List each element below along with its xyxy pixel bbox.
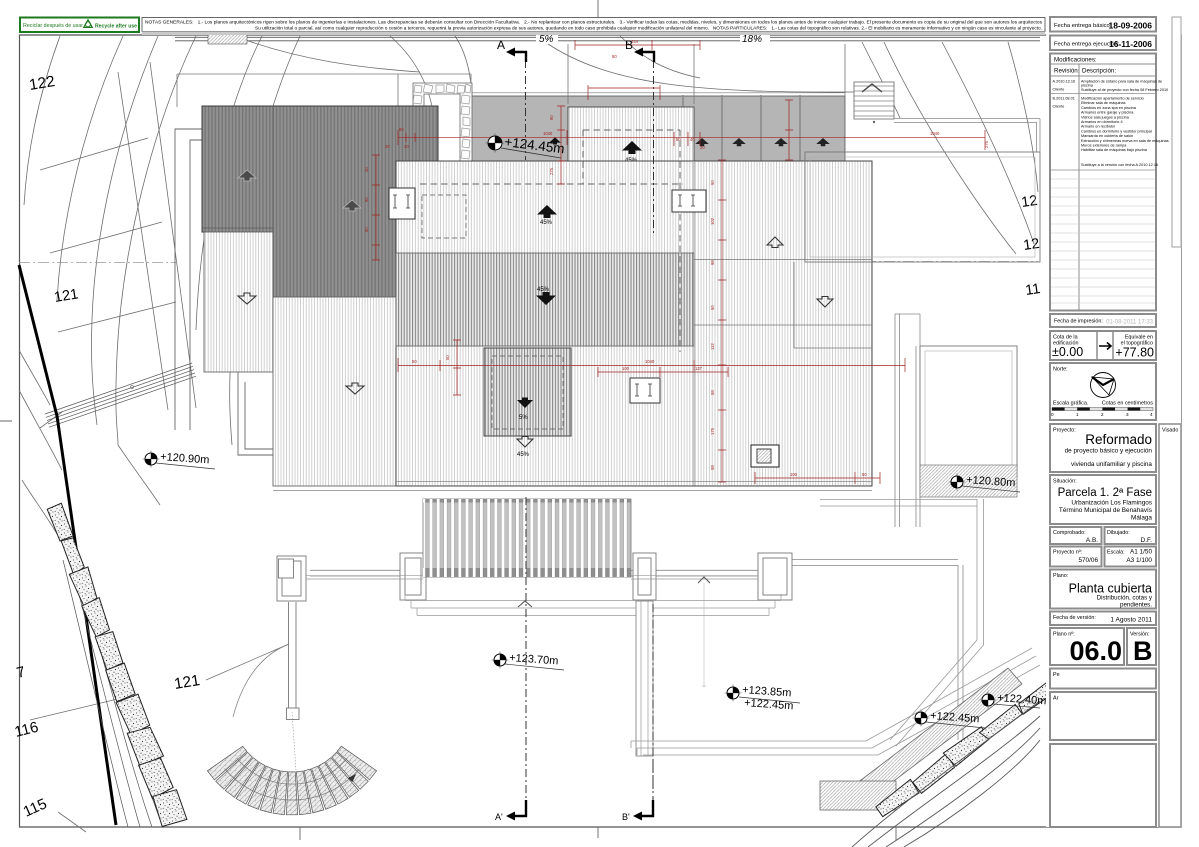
svg-text:112: 112	[710, 343, 715, 350]
svg-text:20: 20	[700, 145, 705, 150]
svg-text:1040: 1040	[543, 131, 553, 136]
svg-text:Armario en recibidor: Armario en recibidor	[1081, 125, 1116, 129]
svg-text:58: 58	[710, 465, 715, 470]
svg-text:45%: 45%	[517, 452, 530, 458]
svg-text:90: 90	[364, 197, 369, 202]
svg-text:12: 12	[1020, 193, 1038, 211]
svg-text:A': A'	[495, 812, 503, 822]
svg-text:Descripción:: Descripción:	[1082, 68, 1116, 75]
svg-text:Fecha entrega básico:: Fecha entrega básico:	[1054, 23, 1112, 29]
svg-text:45%: 45%	[540, 220, 553, 226]
svg-text:Escala:: Escala:	[1107, 550, 1125, 556]
svg-text:1040: 1040	[930, 131, 940, 136]
svg-text:A: A	[497, 38, 505, 52]
svg-text:NOTAS GENERALES: 1.- Los pla: NOTAS GENERALES: 1.- Los planos arquitec…	[145, 20, 1043, 25]
svg-text:Reformado: Reformado	[1085, 432, 1152, 447]
svg-text:Modificaciones:: Modificaciones:	[1054, 57, 1097, 64]
svg-text:de proyecto básico y ejecución: de proyecto básico y ejecución	[1065, 448, 1153, 455]
svg-text:±0.00: ±0.00	[1052, 345, 1083, 359]
svg-text:Armarios en dormitorio 4: Armarios en dormitorio 4	[1081, 120, 1123, 124]
svg-text:Plano:: Plano:	[1053, 573, 1068, 579]
svg-text:Sustituye al de proyecto con f: Sustituye al de proyecto con fecha 08 Fe…	[1081, 88, 1168, 92]
svg-text:50: 50	[412, 359, 417, 364]
svg-text:Ar: Ar	[1053, 696, 1059, 702]
svg-text:Proyecto nº:: Proyecto nº:	[1053, 550, 1082, 556]
svg-text:Fecha de versión:: Fecha de versión:	[1053, 615, 1096, 621]
svg-text:Eliminar sala de máquinas: Eliminar sala de máquinas	[1081, 101, 1126, 105]
svg-text:Málaga: Málaga	[1131, 515, 1152, 522]
svg-text:11: 11	[1024, 281, 1041, 299]
svg-text:18-09-2006: 18-09-2006	[1109, 21, 1153, 31]
svg-text:Fecha de impresión:: Fecha de impresión:	[1054, 319, 1103, 325]
svg-text:Reciclar después de usar: Reciclar después de usar	[23, 23, 83, 29]
svg-text:Ampliación de sótano para sala: Ampliación de sótano para sala de máquin…	[1081, 80, 1162, 84]
svg-text:100: 100	[622, 366, 630, 371]
svg-text:20: 20	[385, 144, 390, 149]
svg-text:Urbanización Los Flamingos: Urbanización Los Flamingos	[1071, 500, 1152, 507]
svg-text:D.F.: D.F.	[1141, 537, 1153, 544]
svg-text:50: 50	[676, 137, 681, 142]
svg-text:A.B.: A.B.	[1086, 537, 1098, 544]
svg-text:1040: 1040	[645, 359, 655, 364]
svg-text:40: 40	[690, 137, 695, 142]
svg-text:Planta cubierta: Planta cubierta	[1069, 582, 1152, 596]
svg-text:Habilitar sala de máquinas baj: Habilitar sala de máquinas bajo piscina	[1081, 148, 1148, 152]
svg-text:Muros exteriores de rampa: Muros exteriores de rampa	[1081, 144, 1127, 148]
svg-text:Visado: Visado	[1162, 428, 1178, 434]
svg-text:102: 102	[710, 217, 715, 225]
svg-text:98: 98	[710, 260, 715, 265]
svg-text:16-11-2006: 16-11-2006	[1109, 39, 1152, 49]
svg-text:50: 50	[710, 180, 715, 185]
svg-text:Su utilización total o parcial: Su utilización total o parcial, así como…	[255, 26, 1042, 31]
svg-text:570/06: 570/06	[1078, 557, 1098, 564]
svg-text:A1 1/50: A1 1/50	[1130, 549, 1152, 556]
svg-text:Proyecto:: Proyecto:	[1053, 428, 1076, 434]
svg-text:Modificación apartamento de se: Modificación apartamento de servicio	[1081, 97, 1144, 101]
svg-text:B: B	[625, 38, 633, 52]
svg-text:2: 2	[1101, 412, 1104, 417]
svg-text:58: 58	[710, 390, 715, 395]
svg-text:Cambios en zona spa en piscina: Cambios en zona spa en piscina	[1081, 106, 1137, 110]
svg-text:Cotas en centímetros: Cotas en centímetros	[1102, 401, 1154, 407]
svg-text:5%: 5%	[539, 34, 554, 45]
svg-text:1 Agosto 2011: 1 Agosto 2011	[1110, 617, 1152, 624]
svg-text:01-08-2011 17:33: 01-08-2011 17:33	[1106, 320, 1154, 326]
svg-text:B: B	[1133, 636, 1153, 666]
svg-text:pendientes.: pendientes.	[1120, 601, 1152, 608]
svg-text:Recycle after use: Recycle after use	[95, 24, 138, 30]
svg-text:50: 50	[612, 54, 617, 59]
svg-text:50: 50	[862, 472, 867, 477]
svg-text:Pe: Pe	[1053, 672, 1060, 678]
svg-text:06.0: 06.0	[1069, 636, 1122, 666]
svg-text:Cliente: Cliente	[1053, 105, 1065, 109]
svg-text:4: 4	[1150, 412, 1153, 417]
svg-text:Dibujado:: Dibujado:	[1107, 530, 1130, 536]
svg-text:Término Municipal de Benahavís: Término Municipal de Benahavís	[1059, 507, 1152, 514]
svg-text:Cambios en dormitorio y vestid: Cambios en dormitorio y vestidor princip…	[1081, 129, 1152, 133]
svg-text:B': B'	[622, 812, 630, 822]
svg-text:90: 90	[364, 227, 369, 232]
svg-text:137: 137	[695, 366, 703, 371]
svg-text:175: 175	[710, 427, 715, 435]
svg-text:Escala gráfica.: Escala gráfica.	[1053, 401, 1088, 407]
svg-text:vivienda unifamiliar y piscina: vivienda unifamiliar y piscina	[1071, 461, 1152, 468]
svg-text:5%: 5%	[519, 415, 528, 421]
svg-text:275: 275	[549, 167, 554, 175]
svg-text:Armarios entre garaje y piscin: Armarios entre garaje y piscina	[1081, 111, 1134, 115]
svg-text:Vidrios sala juegos a piscina: Vidrios sala juegos a piscina	[1081, 115, 1130, 119]
svg-text:50: 50	[445, 355, 450, 360]
svg-text:50: 50	[710, 305, 715, 310]
svg-text:12: 12	[1022, 236, 1040, 254]
svg-text:100: 100	[790, 472, 798, 477]
svg-text:Situación:: Situación:	[1053, 479, 1077, 485]
svg-text:Comprobado:: Comprobado:	[1053, 530, 1086, 536]
svg-text:40: 40	[404, 144, 409, 149]
svg-text:90: 90	[549, 115, 554, 120]
svg-text:18%: 18%	[742, 34, 762, 45]
svg-text:Parcela 1. 2ª Fase: Parcela 1. 2ª Fase	[1058, 487, 1152, 499]
svg-text:Mansarda en cubierta de salón: Mansarda en cubierta de salón	[1081, 134, 1133, 138]
svg-text:Sustituye a la versión con fec: Sustituye a la versión con fecha A.2010.…	[1081, 163, 1158, 167]
svg-text:Cliente: Cliente	[1053, 88, 1065, 92]
svg-text:+77.80: +77.80	[1115, 346, 1154, 360]
svg-text:30: 30	[364, 167, 369, 172]
svg-text:3: 3	[1126, 412, 1129, 417]
svg-text:Revisión:: Revisión:	[1054, 68, 1080, 75]
svg-text:1: 1	[1076, 412, 1079, 417]
svg-text:A.2010.12.16: A.2010.12.16	[1053, 80, 1076, 84]
svg-text:275: 275	[984, 140, 989, 148]
svg-text:Extracción y chimeneas nueva e: Extracción y chimeneas nueva en sala de …	[1081, 139, 1169, 143]
svg-text:Norte:: Norte:	[1053, 367, 1068, 373]
svg-text:B.2011.08.01: B.2011.08.01	[1053, 97, 1075, 101]
svg-text:A3 1/100: A3 1/100	[1126, 557, 1152, 564]
svg-text:0: 0	[1051, 412, 1054, 417]
svg-text:80: 80	[399, 127, 404, 132]
